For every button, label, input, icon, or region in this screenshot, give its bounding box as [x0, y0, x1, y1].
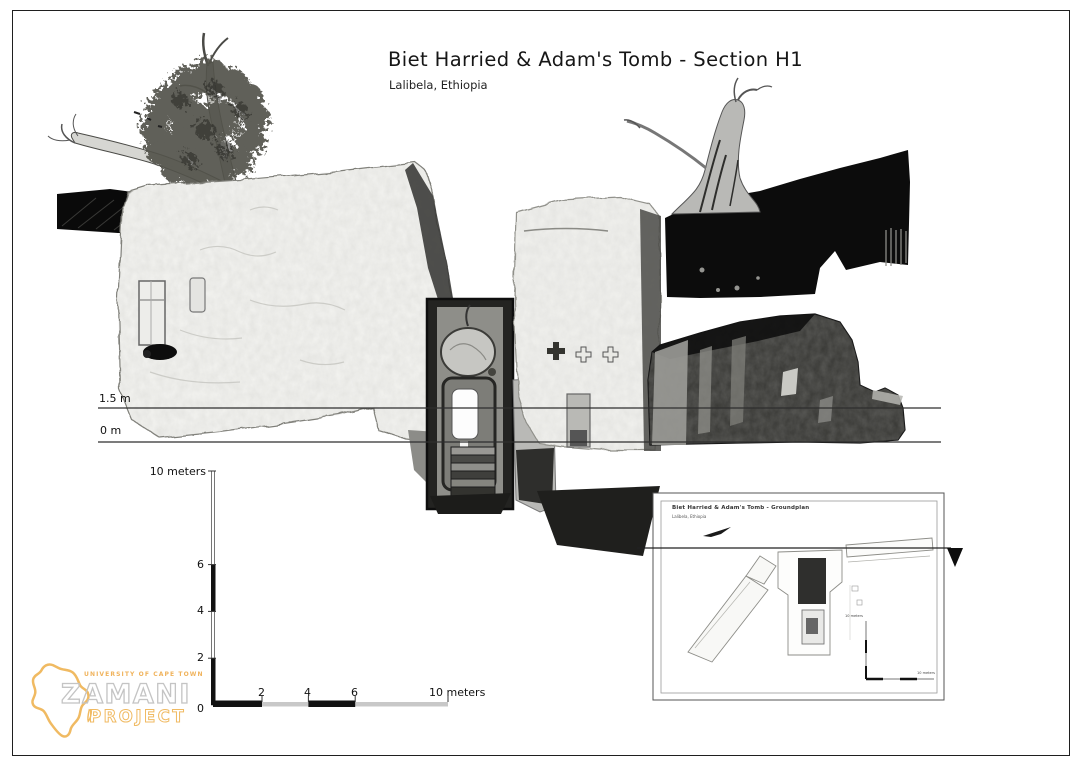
inset-groundplan: [637, 493, 963, 700]
ref-label-1-5m: 1.5 m: [99, 393, 131, 405]
left-wall: [118, 162, 455, 440]
inset-vscale-label: 10 meters: [845, 615, 863, 619]
vscale-top-label: 10 meters: [140, 466, 206, 478]
vertical-scale-bar: [208, 471, 216, 705]
rock-mass-upper-right: [665, 150, 910, 298]
hscale-tick-6: 6: [351, 687, 358, 699]
mound-light-patch: [781, 368, 798, 396]
wall-niche: [190, 278, 205, 312]
door-opening: [452, 389, 478, 439]
ref-label-0m: 0 m: [100, 425, 121, 437]
rock-mound: [648, 314, 905, 445]
hscale-tick-2: 2: [258, 687, 265, 699]
scale-origin-0: 0: [197, 703, 204, 715]
drawing-plate: Biet Harried & Adam's Tomb - Section H1 …: [0, 0, 1086, 768]
mound-left-face: [652, 340, 688, 445]
branch-left: [627, 121, 706, 168]
stairs: [451, 447, 495, 496]
dome-dot: [488, 368, 496, 376]
inset-title: Biet Harried & Adam's Tomb - Groundplan: [672, 506, 809, 512]
page-subtitle: Lalibela, Ethiopia: [389, 79, 488, 91]
wall-ladder: [139, 281, 165, 345]
section-direction-marker: [947, 548, 963, 567]
wall-texture: [118, 162, 452, 440]
horizontal-scale-bar: [213, 696, 448, 707]
mound-light-band: [698, 346, 712, 434]
dark-object-detail: [143, 350, 151, 358]
left-tree: [48, 33, 270, 200]
vscale-tick-4: 4: [197, 605, 204, 617]
chamber-base: [430, 493, 511, 514]
under-wall-shadow: [537, 486, 660, 556]
branch-twigs: [624, 78, 772, 128]
mound-light-patch: [818, 396, 833, 423]
vscale-tick-6: 6: [197, 559, 204, 571]
vscale-tick-2: 2: [197, 652, 204, 664]
logo-subname: PROJECT: [89, 708, 186, 725]
inset-hscale-label: 10 meters: [917, 672, 935, 676]
section-art: [0, 0, 1086, 768]
inset-subtitle: Lalibela, Ethiopia: [672, 515, 706, 519]
logo-name: ZAMANI: [61, 681, 191, 709]
arch-dome: [441, 328, 495, 376]
niche-shadow: [570, 430, 587, 446]
hscale-tick-4: 4: [304, 687, 311, 699]
page-title: Biet Harried & Adam's Tomb - Section H1: [388, 50, 803, 70]
logo-institution: UNIVERSITY OF CAPE TOWN: [84, 672, 204, 678]
hscale-end-label: 10 meters: [429, 687, 485, 699]
